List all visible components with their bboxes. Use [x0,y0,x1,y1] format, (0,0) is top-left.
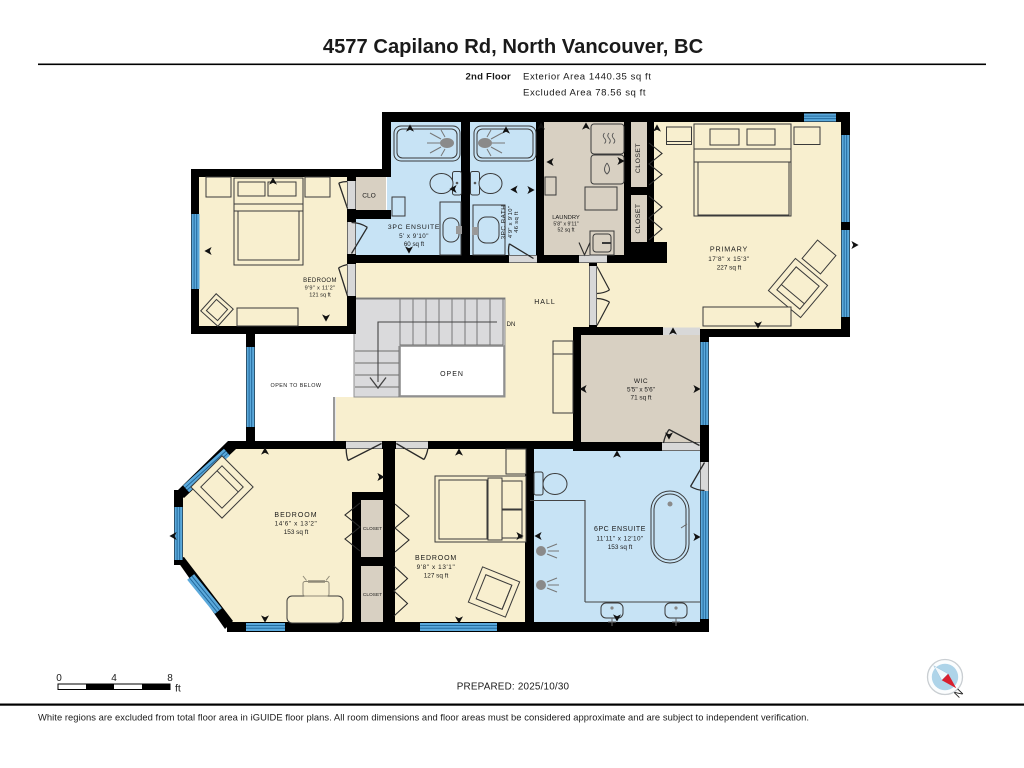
svg-text:5'5" x 5'6": 5'5" x 5'6" [627,387,655,394]
svg-text:4577 Capilano Rd, North Vancou: 4577 Capilano Rd, North Vancouver, BC [323,36,704,58]
svg-text:3PC BATH: 3PC BATH [501,205,508,240]
svg-text:5' x 9'10": 5' x 9'10" [399,233,429,240]
svg-text:White regions are excluded fro: White regions are excluded from total fl… [38,712,809,723]
svg-text:9'9" x 11'2": 9'9" x 11'2" [305,286,336,292]
svg-text:WIC: WIC [634,378,648,385]
svg-text:14'6" x 13'2": 14'6" x 13'2" [275,521,318,528]
svg-text:OPEN TO BELOW: OPEN TO BELOW [271,383,322,389]
svg-text:2nd Floor: 2nd Floor [465,72,511,83]
svg-text:52 sq ft: 52 sq ft [557,228,575,234]
svg-text:LAUNDRY: LAUNDRY [552,215,580,221]
svg-text:71 sq ft: 71 sq ft [631,395,652,402]
svg-text:CLOSET: CLOSET [635,203,642,233]
svg-text:11'11" x 12'10": 11'11" x 12'10" [596,536,643,543]
svg-text:153 sq ft: 153 sq ft [284,529,309,536]
svg-text:227 sq ft: 227 sq ft [717,265,742,272]
svg-text:17'8" x 15'3": 17'8" x 15'3" [708,256,750,263]
svg-text:153 sq ft: 153 sq ft [608,544,633,551]
svg-text:BEDROOM: BEDROOM [415,555,457,562]
svg-text:Excluded Area 78.56 sq ft: Excluded Area 78.56 sq ft [523,88,646,99]
svg-text:3PC ENSUITE: 3PC ENSUITE [388,224,440,231]
svg-text:BEDROOM: BEDROOM [303,278,337,284]
svg-text:4: 4 [111,673,117,684]
svg-text:127 sq ft: 127 sq ft [424,573,449,580]
svg-text:0: 0 [56,673,62,684]
svg-text:Exterior Area 1440.35 sq ft: Exterior Area 1440.35 sq ft [523,72,651,83]
svg-text:ft: ft [175,683,181,695]
svg-text:PRIMARY: PRIMARY [710,245,748,254]
svg-text:CLOSET: CLOSET [635,143,642,173]
svg-text:CLOSET: CLOSET [363,526,382,532]
svg-text:9'8" x 13'1": 9'8" x 13'1" [417,564,456,571]
svg-text:HALL: HALL [534,299,556,306]
svg-text:OPEN: OPEN [440,371,464,378]
svg-text:46 sq ft: 46 sq ft [514,211,520,233]
svg-text:60 sq ft: 60 sq ft [404,241,425,248]
svg-text:8: 8 [167,673,173,684]
svg-text:CLO: CLO [362,193,376,200]
svg-text:121 sq ft: 121 sq ft [309,293,331,299]
svg-text:6PC ENSUITE: 6PC ENSUITE [594,526,646,533]
svg-text:CLOSET: CLOSET [363,592,382,598]
svg-text:BEDROOM: BEDROOM [274,512,317,519]
svg-text:DN: DN [507,322,516,328]
svg-text:PREPARED: 2025/10/30: PREPARED: 2025/10/30 [457,682,570,693]
